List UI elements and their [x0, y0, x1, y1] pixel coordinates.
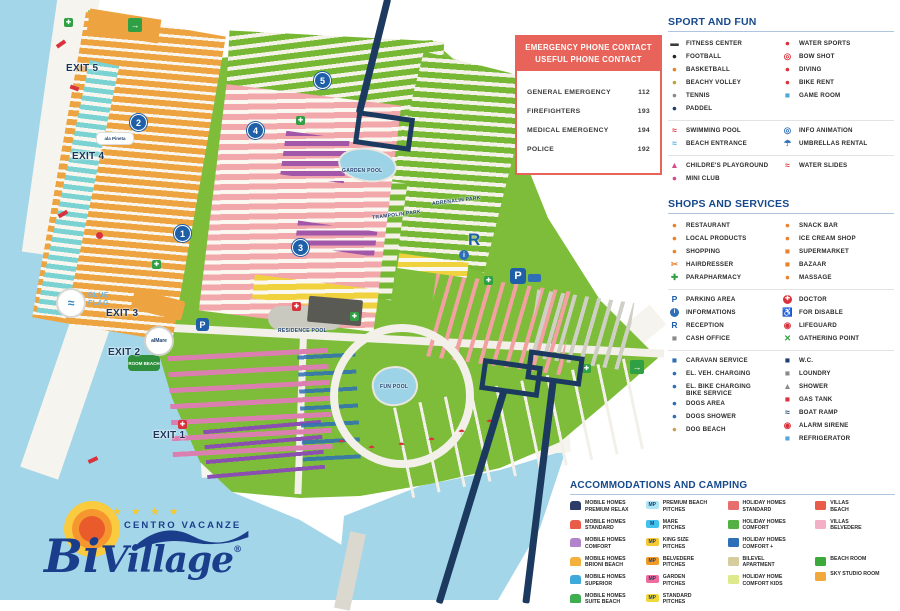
mobile-home-comfort-icon	[570, 538, 581, 547]
legend-item-label: GAME ROOM	[799, 90, 840, 99]
dumbbell-icon: ▬	[668, 38, 681, 49]
legend-item-label: MASSAGE	[799, 272, 832, 281]
legend-item-label: FITNESS CENTER	[686, 38, 742, 47]
massage-icon: ●	[781, 272, 794, 283]
accommodation-item: BILEVEL APARTMENT	[728, 556, 812, 569]
legend-item: ■GAS TANK	[781, 394, 894, 407]
first-aid-icon: ✚	[292, 302, 301, 311]
legend-column: ≈WATER SLIDES	[781, 160, 894, 186]
zone-marker-5: 5	[314, 72, 331, 89]
cash-office-icon: ■	[668, 333, 681, 344]
standard-pitch-icon: MP	[646, 594, 659, 602]
logo-name-bi: Bi	[44, 529, 100, 583]
legend-item: ◎INFO ANIMATION	[781, 125, 894, 138]
premium-beach-pitch-icon: MP	[646, 501, 659, 509]
accommodations-legend: ACCOMMODATIONS AND CAMPING MOBILE HOMES …	[570, 480, 895, 606]
emergency-label: MEDICAL EMERGENCY	[527, 127, 609, 134]
legend-item: ▬FITNESS CENTER	[668, 38, 781, 51]
legend-item: ♿FOR DISABLE	[781, 307, 894, 320]
logo-name-village: Village	[100, 539, 233, 581]
legend-column: ▲CHILDRE'S PLAYGROUND●MINI CLUB	[668, 160, 781, 186]
exit-2-label: EXIT 2	[108, 347, 140, 358]
fun-pool-label: FUN POOL	[380, 384, 408, 390]
king-size-pitch-icon: MP	[646, 538, 659, 546]
cutlery-icon: ●	[668, 220, 681, 231]
legend-item: ■REFRIGERATOR	[781, 433, 894, 446]
emergency-title-line1: EMERGENCY PHONE CONTACT	[520, 42, 657, 54]
legend-item-label: PARKING AREA	[686, 294, 736, 303]
dog-beach-icon: ●	[668, 424, 681, 435]
mobile-home-premium-relax-icon	[570, 501, 581, 510]
reception-letter: R	[468, 230, 480, 250]
accommodation-column: MPPREMIUM BEACH PITCHESMMARE PITCHESMPKI…	[646, 500, 724, 606]
emergency-label: FIREFIGHTERS	[527, 108, 580, 115]
emergency-row: MEDICAL EMERGENCY194	[527, 127, 650, 134]
legend-item-label: PADDEL	[686, 103, 712, 112]
legend-item-label: INFORMATIONS	[686, 307, 736, 316]
legend-group: ■CARAVAN SERVICE●EL. VEH. CHARGING●EL. B…	[668, 350, 894, 450]
legend-group: ▬FITNESS CENTER●FOOTBALL●BASKETBALL●BEAC…	[668, 34, 894, 120]
legend-item: ●EL. BIKE CHARGING BIKE SERVICE	[668, 381, 781, 398]
dog-shower-icon: ●	[668, 411, 681, 422]
gathering-point-icon: ✚	[64, 18, 73, 27]
legend-item-label: BAZAAR	[799, 259, 826, 268]
resort-map-page: { "emergency": { "title1": "EMERGENCY PH…	[0, 0, 900, 600]
holiday-home-comfort-plus-icon	[728, 538, 739, 547]
accommodation-item: MOBILE HOMES STANDARD	[570, 519, 642, 532]
emergency-number: 112	[638, 89, 650, 96]
accommodation-item-label: MOBILE HOMES BRIONI BEACH	[585, 556, 626, 569]
water-slide-icon: ≈	[781, 160, 794, 171]
belvedere-pitch-icon: MP	[646, 557, 659, 565]
legend-item-label: SHOWER	[799, 381, 828, 390]
legend-item: ●PADDEL	[668, 103, 781, 116]
legend-item: ●FOOTBALL	[668, 51, 781, 64]
accommodation-item-label: MARE PITCHES	[663, 519, 685, 532]
lifebuoy-icon: ◉	[781, 320, 794, 331]
legend-item-label: DOG BEACH	[686, 424, 726, 433]
legend-item-label: FOOTBALL	[686, 51, 721, 60]
legend-column: ●SNACK BAR●ICE CREAM SHOP■SUPERMARKET■BA…	[781, 220, 894, 285]
legend-item: ●ICE CREAM SHOP	[781, 233, 894, 246]
accommodation-item-label: MOBILE HOMES STANDARD	[585, 519, 626, 532]
accommodation-item-label: STANDARD PITCHES	[663, 593, 692, 606]
accommodation-item: MPPREMIUM BEACH PITCHES	[646, 500, 724, 513]
legend-item-label: REFRIGERATOR	[799, 433, 850, 442]
legend-column: ▬FITNESS CENTER●FOOTBALL●BASKETBALL●BEAC…	[668, 38, 781, 116]
boat-ramp-icon: ≈	[781, 407, 794, 418]
accommodation-item: HOLIDAY HOME COMFORT KIDS	[728, 574, 812, 587]
legend-item: ●EL. VEH. CHARGING	[668, 368, 781, 381]
legend-item-label: W.C.	[799, 355, 813, 364]
legend-item: ■CARAVAN SERVICE	[668, 355, 781, 368]
villas-belvedere-icon	[815, 520, 826, 529]
emergency-title-line2: USEFUL PHONE CONTACT	[520, 54, 657, 66]
legend-group: ▲CHILDRE'S PLAYGROUND●MINI CLUB≈WATER SL…	[668, 155, 894, 190]
legend-column: ■W.C.■LOUNDRY▲SHOWER■GAS TANK≈BOAT RAMP◉…	[781, 355, 894, 446]
accommodation-item: SKY STUDIO ROOM	[815, 571, 895, 581]
logo-name: BiVillage®	[44, 529, 242, 583]
water-ski-icon: ●	[781, 38, 794, 49]
legend-item: ●SNACK BAR	[781, 220, 894, 233]
legend-group: ●RESTAURANT●LOCAL PRODUCTS●SHOPPING✂HAIR…	[668, 216, 894, 289]
bus-stop-icon	[528, 274, 541, 282]
emergency-row: POLICE192	[527, 146, 650, 153]
legend-item: ●WATER SPORTS	[781, 38, 894, 51]
exit-4-label: EXIT 4	[72, 151, 104, 162]
legend-item-label: BOW SHOT	[799, 51, 835, 60]
accommodation-item-label: VILLAS BELVEDERE	[830, 519, 861, 532]
legend-item-label: DOGS SHOWER	[686, 411, 736, 420]
legend-column: ◎INFO ANIMATION☂UMBRELLAS RENTAL	[781, 125, 894, 151]
mobile-home-suite-beach-icon	[570, 594, 581, 603]
dog-icon: ●	[668, 398, 681, 409]
exit-5-label: EXIT 5	[66, 63, 98, 74]
alarm-icon: ◉	[781, 420, 794, 431]
accommodation-item: MOBILE HOMES BRIONI BEACH	[570, 556, 642, 569]
legend-item-label: RECEPTION	[686, 320, 724, 329]
garden-pitch-icon: MP	[646, 575, 659, 583]
exit-1-label: EXIT 1	[153, 430, 185, 441]
accommodation-item: HOLIDAY HOMES STANDARD	[728, 500, 812, 513]
first-aid-icon: ✚	[178, 420, 187, 429]
holiday-home-standard-icon	[728, 501, 739, 510]
zone-marker-1: 1	[174, 225, 191, 242]
legend-column: ●WATER SPORTS◎BOW SHOT●DIVING●BIKE RENT■…	[781, 38, 894, 116]
legend-item: ■W.C.	[781, 355, 894, 368]
parking-icon-main: P	[510, 268, 526, 284]
legend-column: ✚DOCTOR♿FOR DISABLE◉LIFEGUARD✕GATHERING …	[781, 294, 894, 346]
info-animation-icon: ◎	[781, 125, 794, 136]
swimmer-icon: ≈	[668, 125, 681, 136]
spacer	[815, 537, 895, 550]
shops-and-services-title: SHOPS AND SERVICES	[668, 198, 894, 214]
almare-restaurant-sign: alMare	[144, 326, 174, 356]
legend-item-label: WATER SPORTS	[799, 38, 850, 47]
legend-item-label: SNACK BAR	[799, 220, 838, 229]
villas-beach-icon	[815, 501, 826, 510]
accommodation-item: MOBILE HOMES SUPERIOR	[570, 574, 642, 587]
parking-icon-beach: P	[196, 318, 209, 331]
legend-item: ≈WATER SLIDES	[781, 160, 894, 173]
legend-column: ●RESTAURANT●LOCAL PRODUCTS●SHOPPING✂HAIR…	[668, 220, 781, 285]
legend-item: RRECEPTION	[668, 320, 781, 333]
beach-chair-icon: ≈	[668, 138, 681, 149]
legend-item-label: GATHERING POINT	[799, 333, 859, 342]
emergency-row: GENERAL EMERGENCY112	[527, 89, 650, 96]
legend-item-label: CHILDRE'S PLAYGROUND	[686, 160, 768, 169]
reception-icon: R	[668, 320, 681, 331]
legend-item: ●TENNIS	[668, 90, 781, 103]
info-icon: i	[670, 308, 679, 317]
holiday-home-comfort-kids-icon	[728, 575, 739, 584]
logo-stars: ★ ★ ★ ★	[112, 505, 182, 518]
accommodation-item-label: KING SIZE PITCHES	[663, 537, 689, 550]
legend-item: ≈SWIMMING POOL	[668, 125, 781, 138]
emergency-number: 192	[638, 146, 650, 153]
beach-umbrella-icon: ☂	[428, 436, 435, 445]
accommodation-item-label: HOLIDAY HOMES COMFORT +	[743, 537, 786, 550]
legend-item: ◉ALARM SIRENE	[781, 420, 894, 433]
accommodation-item-label: HOLIDAY HOMES COMFORT	[743, 519, 786, 532]
ev-charging-icon: ●	[668, 368, 681, 379]
bicycle-icon: ●	[781, 77, 794, 88]
emergency-exit-icon-north: →	[128, 18, 142, 32]
registered-mark: ®	[233, 545, 242, 555]
legend-panel: SPORT AND FUN ▬FITNESS CENTER●FOOTBALL●B…	[668, 16, 894, 450]
accommodation-item: MPKING SIZE PITCHES	[646, 537, 724, 550]
accommodation-column: HOLIDAY HOMES STANDARDHOLIDAY HOMES COMF…	[728, 500, 812, 606]
gathering-point-icon: ✚	[484, 276, 493, 285]
mare-pitch-icon: M	[646, 520, 659, 528]
volleyball-icon: ●	[668, 77, 681, 88]
legend-item: ■SUPERMARKET	[781, 246, 894, 259]
laundry-icon: ■	[781, 368, 794, 379]
shirt-icon: ●	[668, 246, 681, 257]
legend-item-label: EL. BIKE CHARGING BIKE SERVICE	[686, 381, 751, 398]
legend-item: ☂UMBRELLAS RENTAL	[781, 138, 894, 151]
parking-icon: P	[668, 294, 681, 305]
accommodation-item: VILLAS BELVEDERE	[815, 519, 895, 532]
legend-item-label: LIFEGUARD	[799, 320, 837, 329]
legend-item-label: BIKE RENT	[799, 77, 834, 86]
legend-item: iINFORMATIONS	[668, 307, 781, 320]
legend-item-label: BOAT RAMP	[799, 407, 838, 416]
slide-icon: ▲	[668, 160, 681, 171]
legend-item-label: DOCTOR	[799, 294, 827, 303]
gamepad-icon: ■	[781, 90, 794, 101]
umbrella-icon: ☂	[781, 138, 794, 149]
accommodation-item: MOBILE HOMES PREMIUM RELAX	[570, 500, 642, 513]
legend-item: PPARKING AREA	[668, 294, 781, 307]
blue-flag-badge: ≈	[56, 288, 86, 318]
blue-flag-label: BLUEFLAG	[88, 292, 109, 308]
garden-pool-label: GARDEN POOL	[342, 168, 383, 174]
legend-group: ≈SWIMMING POOL≈BEACH ENTRANCE◎INFO ANIMA…	[668, 120, 894, 155]
gas-tank-icon: ■	[781, 394, 794, 405]
emergency-label: POLICE	[527, 146, 554, 153]
legend-item-label: GAS TANK	[799, 394, 832, 403]
legend-item: ●LOCAL PRODUCTS	[668, 233, 781, 246]
emergency-contact-box: EMERGENCY PHONE CONTACT USEFUL PHONE CON…	[515, 35, 662, 175]
accommodations-columns: MOBILE HOMES PREMIUM RELAXMOBILE HOMES S…	[570, 500, 895, 606]
legend-item-label: DIVING	[799, 64, 822, 73]
accommodation-item-label: BELVEDERE PITCHES	[663, 556, 694, 569]
zone-marker-2: 2	[130, 114, 147, 131]
ice-cream-icon: ●	[781, 233, 794, 244]
sky-studio-room-icon	[815, 572, 826, 581]
legend-item: ■LOUNDRY	[781, 368, 894, 381]
legend-item-label: EL. VEH. CHARGING	[686, 368, 751, 377]
scissors-icon: ✂	[668, 259, 681, 270]
gathering-point-icon: ✚	[350, 312, 359, 321]
diver-icon: ●	[781, 64, 794, 75]
legend-item: ≈BOAT RAMP	[781, 407, 894, 420]
ebike-charging-icon: ●	[668, 381, 681, 392]
legend-item-label: CASH OFFICE	[686, 333, 730, 342]
legend-item: ▲CHILDRE'S PLAYGROUND	[668, 160, 781, 173]
legend-item-label: UMBRELLAS RENTAL	[799, 138, 867, 147]
legend-item-label: PARAPHARMACY	[686, 272, 741, 281]
beach-umbrella-icon: ☂	[338, 438, 345, 447]
legend-item-label: INFO ANIMATION	[799, 125, 853, 134]
accommodation-item: MPSTANDARD PITCHES	[646, 593, 724, 606]
legend-item: ●MINI CLUB	[668, 173, 781, 186]
mobile-home-brioni-beach-icon	[570, 557, 581, 566]
accommodation-item: HOLIDAY HOMES COMFORT +	[728, 537, 812, 550]
target-icon: ◎	[781, 51, 794, 62]
legend-item-label: WATER SLIDES	[799, 160, 847, 169]
accommodation-item-label: MOBILE HOMES PREMIUM RELAX	[585, 500, 629, 513]
snack-bar-icon: ●	[781, 220, 794, 231]
accommodation-item-label: MOBILE HOMES SUITE BEACH	[585, 593, 626, 606]
wave-icon: ≈	[68, 296, 75, 310]
holiday-home-comfort-icon	[728, 520, 739, 529]
emergency-number: 193	[638, 108, 650, 115]
legend-item: ■GAME ROOM	[781, 90, 894, 103]
legend-item-label: MINI CLUB	[686, 173, 720, 182]
accommodation-item-label: PREMIUM BEACH PITCHES	[663, 500, 707, 513]
mobile-home-standard-icon	[570, 520, 581, 529]
gathering-point-icon: ✕	[781, 333, 794, 344]
emergency-label: GENERAL EMERGENCY	[527, 89, 611, 96]
legend-item-label: BEACHY VOLLEY	[686, 77, 741, 86]
accommodation-item: VILLAS BEACH	[815, 500, 895, 513]
basketball-icon: ●	[668, 64, 681, 75]
legend-item: ≈BEACH ENTRANCE	[668, 138, 781, 151]
green-cross-icon: ✚	[668, 272, 681, 283]
accommodation-column: VILLAS BEACHVILLAS BELVEDEREBEACH ROOMSK…	[815, 500, 895, 606]
gathering-point-icon: ✚	[296, 116, 305, 125]
legend-item-label: SHOPPING	[686, 246, 720, 255]
legend-item: ■BAZAAR	[781, 259, 894, 272]
emergency-rows: GENERAL EMERGENCY112FIREFIGHTERS193MEDIC…	[517, 71, 660, 173]
shops-and-services-items: ●RESTAURANT●LOCAL PRODUCTS●SHOPPING✂HAIR…	[668, 216, 894, 450]
legend-item-label: SUPERMARKET	[799, 246, 849, 255]
football-icon: ●	[668, 51, 681, 62]
legend-item-label: ALARM SIRENE	[799, 420, 849, 429]
gathering-point-icon: ✚	[152, 260, 161, 269]
accommodation-item-label: MOBILE HOMES SUPERIOR	[585, 574, 626, 587]
accommodation-item: MOBILE HOMES SUITE BEACH	[570, 593, 642, 606]
legend-item-label: BASKETBALL	[686, 64, 730, 73]
accommodation-item: MMARE PITCHES	[646, 519, 724, 532]
legend-item: ◎BOW SHOT	[781, 51, 894, 64]
legend-column: PPARKING AREAiINFORMATIONSRRECEPTION■CAS…	[668, 294, 781, 346]
accommodations-title: ACCOMMODATIONS AND CAMPING	[570, 480, 895, 495]
bivillage-logo: ★ ★ ★ ★ CENTRO VACANZE BiVillage®	[38, 493, 258, 597]
legend-item: ●BIKE RENT	[781, 77, 894, 90]
info-point-icon: i	[459, 250, 469, 260]
mobile-home-superior-icon	[570, 575, 581, 584]
emergency-number: 194	[638, 127, 650, 134]
legend-item: ■CASH OFFICE	[668, 333, 781, 346]
wheelchair-icon: ♿	[781, 307, 794, 318]
accommodation-item: MPGARDEN PITCHES	[646, 574, 724, 587]
zone-marker-4: 4	[247, 122, 264, 139]
legend-item: ✂HAIRDRESSER	[668, 259, 781, 272]
local-products-icon: ●	[668, 233, 681, 244]
legend-item-label: HAIRDRESSER	[686, 259, 733, 268]
shower-icon: ▲	[781, 381, 794, 392]
sport-and-fun-items: ▬FITNESS CENTER●FOOTBALL●BASKETBALL●BEAC…	[668, 34, 894, 190]
emergency-box-header: EMERGENCY PHONE CONTACT USEFUL PHONE CON…	[517, 37, 660, 71]
legend-item-label: BEACH ENTRANCE	[686, 138, 747, 147]
accommodation-item-label: MOBILE HOMES COMFORT	[585, 537, 626, 550]
beach-umbrella-icon: ☂	[368, 444, 375, 453]
zone-marker-3: 3	[292, 239, 309, 256]
accommodation-item-label: VILLAS BEACH	[830, 500, 848, 513]
legend-item-label: LOUNDRY	[799, 368, 831, 377]
legend-item: ●DOGS SHOWER	[668, 411, 781, 424]
legend-item-label: ICE CREAM SHOP	[799, 233, 856, 242]
legend-item: ●SHOPPING	[668, 246, 781, 259]
legend-item-label: SWIMMING POOL	[686, 125, 741, 134]
legend-item: ●DOGS AREA	[668, 398, 781, 411]
ala-pineta-restaurant-sign: ala Pineta	[96, 132, 134, 145]
accommodation-column: MOBILE HOMES PREMIUM RELAXMOBILE HOMES S…	[570, 500, 642, 606]
legend-item-label: FOR DISABLE	[799, 307, 843, 316]
caravan-icon: ■	[668, 355, 681, 366]
cart-icon: ■	[781, 246, 794, 257]
legend-column: ≈SWIMMING POOL≈BEACH ENTRANCE	[668, 125, 781, 151]
legend-item-label: DOGS AREA	[686, 398, 725, 407]
accommodation-item-label: SKY STUDIO ROOM	[830, 571, 879, 578]
accommodation-item-label: HOLIDAY HOMES STANDARD	[743, 500, 786, 513]
wc-icon: ■	[781, 355, 794, 366]
accommodation-item-label: HOLIDAY HOME COMFORT KIDS	[743, 574, 783, 587]
doctor-cross-icon: ✚	[783, 295, 792, 304]
bilevel-apartment-icon	[728, 557, 739, 566]
legend-item: ✚PARAPHARMACY	[668, 272, 781, 285]
lifeguard-icon	[96, 232, 103, 239]
accommodation-item-label: GARDEN PITCHES	[663, 574, 685, 587]
tennis-racket-icon: ●	[668, 90, 681, 101]
legend-item: ✚DOCTOR	[781, 294, 894, 307]
map-pin-icon: ●	[668, 173, 681, 184]
sport-and-fun-title: SPORT AND FUN	[668, 16, 894, 32]
legend-group: PPARKING AREAiINFORMATIONSRRECEPTION■CAS…	[668, 289, 894, 350]
legend-item: ◉LIFEGUARD	[781, 320, 894, 333]
accommodation-item-label: BILEVEL APARTMENT	[743, 556, 775, 569]
bazaar-icon: ■	[781, 259, 794, 270]
legend-item-label: CARAVAN SERVICE	[686, 355, 748, 364]
legend-item-label: TENNIS	[686, 90, 710, 99]
beach-room-icon	[815, 557, 826, 566]
legend-item: ✕GATHERING POINT	[781, 333, 894, 346]
beach-umbrella-icon: ☂	[398, 441, 405, 450]
accommodation-item: MOBILE HOMES COMFORT	[570, 537, 642, 550]
legend-column: ■CARAVAN SERVICE●EL. VEH. CHARGING●EL. B…	[668, 355, 781, 446]
legend-item: ●BEACHY VOLLEY	[668, 77, 781, 90]
accommodation-item-label: BEACH ROOM	[830, 556, 866, 563]
refrigerator-icon: ■	[781, 433, 794, 444]
legend-item: ●MASSAGE	[781, 272, 894, 285]
emergency-row: FIREFIGHTERS193	[527, 108, 650, 115]
accommodation-item: MPBELVEDERE PITCHES	[646, 556, 724, 569]
legend-item: ▲SHOWER	[781, 381, 894, 394]
exit-3-label: EXIT 3	[106, 308, 138, 319]
accommodation-item: BEACH ROOM	[815, 556, 895, 566]
legend-item: ●RESTAURANT	[668, 220, 781, 233]
reception-building	[307, 296, 363, 327]
paddle-icon: ●	[668, 103, 681, 114]
beach-umbrella-icon: ☂	[458, 428, 465, 437]
residence-pool-label: RESIDENCE POOL	[278, 328, 327, 334]
emergency-exit-icon-east: →	[630, 360, 644, 374]
legend-item-label: LOCAL PRODUCTS	[686, 233, 746, 242]
legend-item-label: RESTAURANT	[686, 220, 730, 229]
